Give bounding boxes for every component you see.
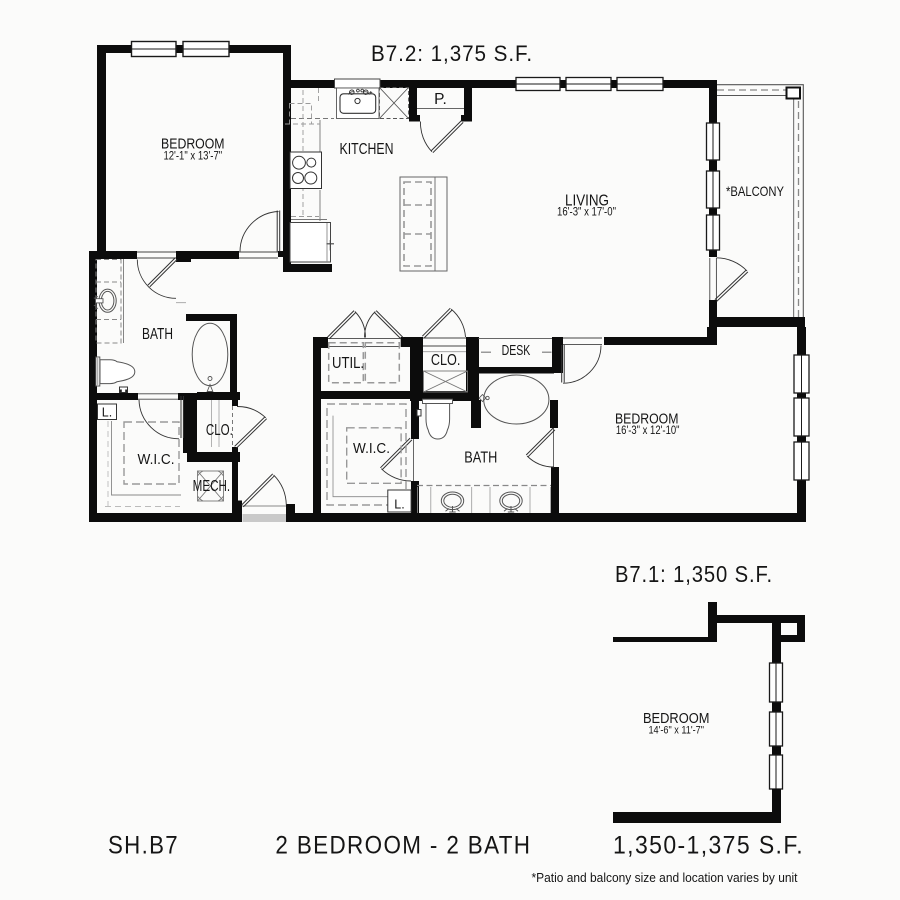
svg-text:SH.B7: SH.B7 bbox=[108, 832, 179, 860]
svg-text:16'-3" x 17'-0": 16'-3" x 17'-0" bbox=[557, 207, 616, 219]
svg-text:W.I.C.: W.I.C. bbox=[138, 451, 175, 468]
svg-text:16'-3" x 12'-10": 16'-3" x 12'-10" bbox=[616, 425, 680, 437]
svg-text:W.I.C.: W.I.C. bbox=[353, 440, 390, 457]
svg-text:14'-6" x 11'-7": 14'-6" x 11'-7" bbox=[648, 724, 704, 736]
svg-text:MECH.: MECH. bbox=[193, 478, 231, 495]
svg-text:2 BEDROOM - 2 BATH: 2 BEDROOM - 2 BATH bbox=[275, 832, 531, 860]
svg-text:CLO.: CLO. bbox=[206, 422, 233, 439]
svg-text:KITCHEN: KITCHEN bbox=[340, 141, 394, 158]
svg-text:L.: L. bbox=[102, 406, 112, 420]
svg-text:B7.1: 1,350 S.F.: B7.1: 1,350 S.F. bbox=[615, 561, 773, 587]
svg-text:*Patio and balcony size and lo: *Patio and balcony size and location var… bbox=[532, 871, 798, 885]
svg-text:BATH: BATH bbox=[142, 326, 173, 343]
svg-text:L.: L. bbox=[394, 498, 404, 512]
svg-text:1,350-1,375 S.F.: 1,350-1,375 S.F. bbox=[613, 832, 804, 860]
svg-text:BATH: BATH bbox=[464, 450, 497, 467]
svg-text:DESK: DESK bbox=[502, 343, 531, 359]
svg-text:P.: P. bbox=[434, 91, 447, 108]
svg-text:B7.2: 1,375 S.F.: B7.2: 1,375 S.F. bbox=[371, 41, 533, 66]
svg-text:12'-1" x 13'-7": 12'-1" x 13'-7" bbox=[163, 151, 222, 163]
svg-text:CLO.: CLO. bbox=[431, 352, 461, 369]
svg-text:*BALCONY: *BALCONY bbox=[726, 183, 785, 199]
svg-text:UTIL.: UTIL. bbox=[332, 355, 364, 372]
